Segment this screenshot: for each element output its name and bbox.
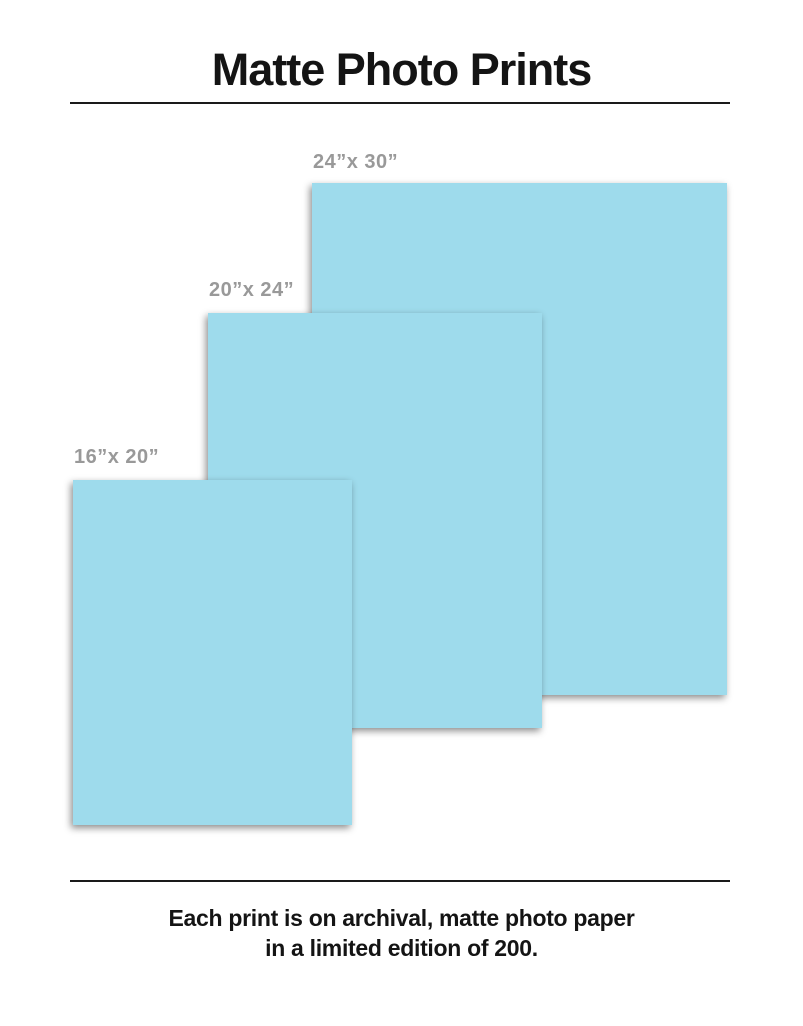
footer-line-2: in a limited edition of 200.: [0, 933, 803, 963]
title-divider-rule: [70, 102, 730, 104]
footer-divider-rule: [70, 880, 730, 882]
print-rect-16x20: [73, 480, 352, 825]
footer-line-1: Each print is on archival, matte photo p…: [0, 903, 803, 933]
print-size-label-24x30: 24”x 30”: [313, 151, 398, 173]
footer-text: Each print is on archival, matte photo p…: [0, 903, 803, 963]
print-size-label-16x20: 16”x 20”: [74, 446, 159, 468]
print-size-label-20x24: 20”x 24”: [209, 279, 294, 301]
page: Matte Photo Prints 24”x 30” 20”x 24” 16”…: [0, 0, 803, 1026]
page-title: Matte Photo Prints: [0, 44, 803, 96]
